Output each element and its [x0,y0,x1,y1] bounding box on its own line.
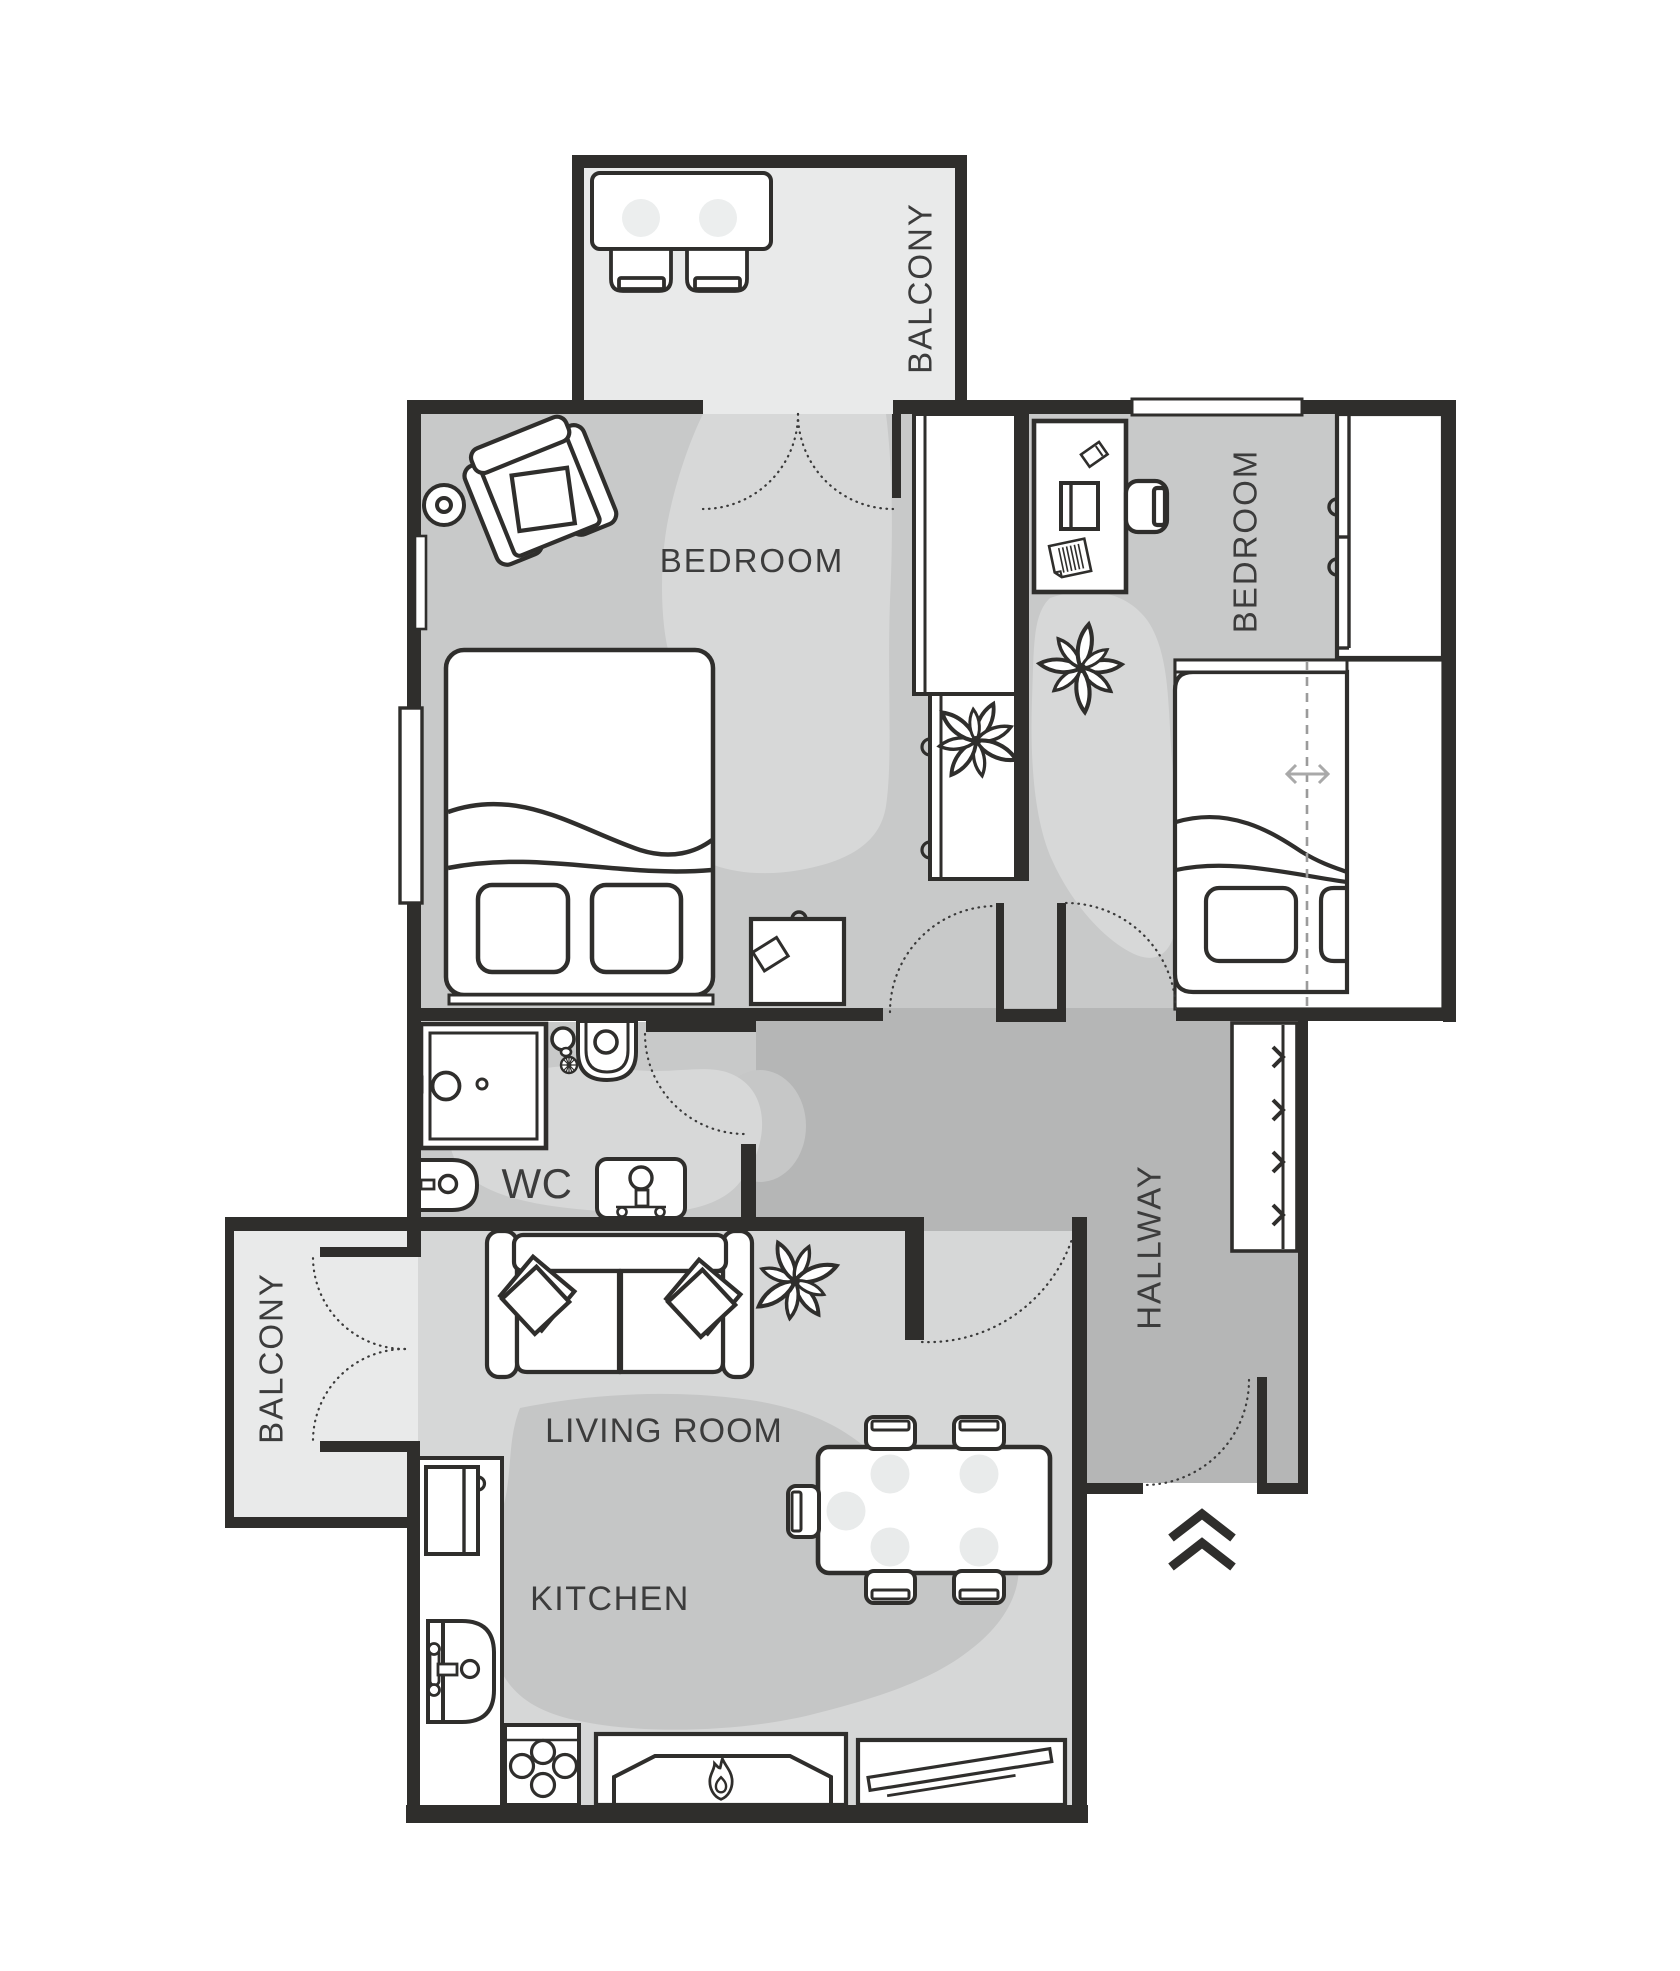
svg-text:BEDROOM: BEDROOM [660,542,845,579]
svg-text:BEDROOM: BEDROOM [1227,449,1264,634]
svg-text:LIVING ROOM: LIVING ROOM [545,1412,783,1450]
svg-text:BALCONY: BALCONY [253,1272,290,1444]
svg-text:WC: WC [502,1160,573,1207]
svg-text:HALLWAY: HALLWAY [1131,1164,1168,1330]
svg-text:KITCHEN: KITCHEN [530,1580,690,1618]
svg-text:BALCONY: BALCONY [902,202,939,374]
